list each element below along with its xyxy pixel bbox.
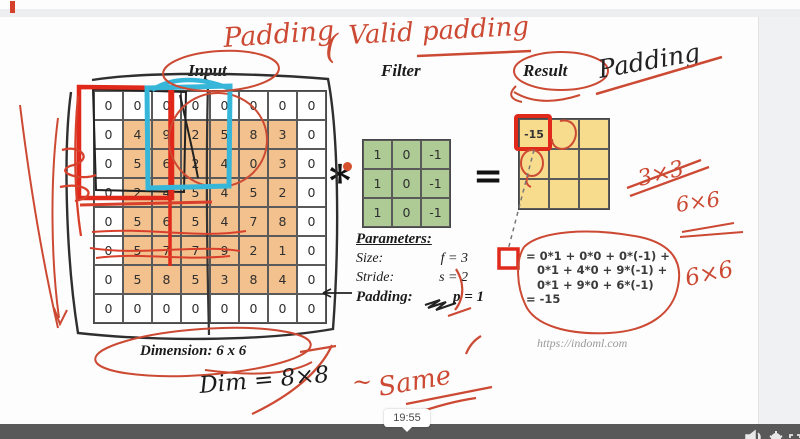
grid-cell: 0 (210, 294, 239, 323)
computation-line: 0*1 + 4*0 + 9*(-1) + (526, 263, 670, 277)
red-underline-padding (417, 51, 531, 56)
cyan-arrow (152, 80, 228, 90)
grid-cell: 0 (181, 294, 210, 323)
grid-cell: 0 (94, 207, 123, 236)
grid-cell: 5 (210, 120, 239, 149)
grid-cell: 0 (94, 178, 123, 207)
grid-cell: 2 (123, 178, 152, 207)
grid-cell: -15 (519, 119, 549, 149)
grid-cell: -1 (421, 140, 450, 169)
grid-cell: 0 (297, 120, 326, 149)
grid-cell: 5 (123, 265, 152, 294)
red-stroke-left-1 (20, 105, 58, 328)
grid-cell (579, 149, 609, 179)
parameters-title: Parameters: (356, 231, 486, 248)
red-cross-3x3 (627, 160, 709, 196)
grid-cell: 0 (297, 207, 326, 236)
grid-cell: 8 (239, 120, 268, 149)
grid-cell: 5 (181, 265, 210, 294)
grid-cell: 0 (94, 149, 123, 178)
red-underline-6x6 (680, 223, 743, 237)
grid-cell: 4 (210, 207, 239, 236)
filter-header: Filter (381, 61, 421, 81)
dimension-label: Dimension: 6 x 6 (140, 343, 246, 360)
grid-cell (519, 149, 549, 179)
grid-cell: 0 (297, 149, 326, 178)
grid-cell: 1 (363, 198, 392, 227)
grid-cell: 0 (297, 178, 326, 207)
handwriting-6x6-first: 6×6 (674, 187, 721, 217)
grid-cell: 4 (268, 265, 297, 294)
grid-cell: 0 (152, 91, 181, 120)
grid-cell: 2 (181, 149, 210, 178)
equals-sign: = (473, 155, 503, 197)
grid-cell: 9 (152, 120, 181, 149)
grid-cell: 1 (363, 169, 392, 198)
red-square-callout (499, 249, 518, 268)
handwriting-padding-black: Padding (595, 38, 702, 85)
grid-cell: 0 (210, 91, 239, 120)
grid-cell (519, 179, 549, 209)
handwriting-same: Same (376, 361, 453, 403)
computation-line: 0*1 + 9*0 + 6*(-1) (526, 278, 670, 292)
grid-cell (549, 149, 579, 179)
red-checkmark (466, 336, 481, 354)
grid-cell: 0 (392, 140, 421, 169)
watermark-url: https://indoml.com (537, 336, 627, 351)
grid-cell: 5 (181, 178, 210, 207)
grid-cell: 0 (297, 265, 326, 294)
padding-label: Padding: (356, 289, 413, 306)
grid-cell: 2 (268, 178, 297, 207)
grid-cell: 0 (152, 294, 181, 323)
computation-line: = 0*1 + 0*0 + 0*(-1) + (526, 249, 670, 263)
input-grid: 0000000004925830056240300245452005654780… (93, 90, 327, 324)
grid-cell: 3 (268, 120, 297, 149)
grid-cell: 8 (152, 265, 181, 294)
grid-cell: 2 (181, 120, 210, 149)
grid-cell (549, 119, 579, 149)
red-dot-marker (343, 162, 352, 171)
parameters-block: Parameters: Size: f = 3 Stride: s = 2 Pa… (356, 231, 486, 306)
grid-cell: 5 (123, 236, 152, 265)
grid-cell: 2 (239, 236, 268, 265)
grid-cell: 6 (152, 207, 181, 236)
handwriting-padding-red: Padding (221, 15, 335, 54)
grid-cell: 4 (123, 120, 152, 149)
padding-row: Padding: p = 1 (356, 289, 484, 306)
grid-cell: -1 (421, 198, 450, 227)
grid-cell: 0 (392, 169, 421, 198)
grid-cell: 4 (210, 149, 239, 178)
computation-result: = -15 (526, 292, 670, 306)
grid-cell: 5 (123, 207, 152, 236)
size-label: Size: (356, 251, 383, 267)
handwriting-valid-padding: Valid padding (348, 12, 530, 51)
grid-cell: 9 (210, 236, 239, 265)
grid-cell: 4 (210, 178, 239, 207)
grid-cell: 0 (297, 236, 326, 265)
grid-cell: 3 (210, 265, 239, 294)
grid-cell: 0 (297, 294, 326, 323)
grid-cell: 0 (392, 198, 421, 227)
grid-cell: 0 (94, 236, 123, 265)
grid-cell: 0 (94, 294, 123, 323)
stride-row: Stride: s = 2 (356, 270, 468, 286)
grid-cell: 1 (268, 236, 297, 265)
grid-cell: 0 (94, 91, 123, 120)
red-underline-dimension (205, 362, 312, 374)
top-divider-band (0, 9, 800, 17)
grid-cell (579, 179, 609, 209)
handwriting-6x6-second: 6×6 (683, 256, 736, 292)
grid-cell: 0 (123, 294, 152, 323)
stride-value: s = 2 (439, 270, 468, 286)
grid-cell: 5 (181, 207, 210, 236)
grid-cell: 0 (94, 265, 123, 294)
red-swirl-result (511, 86, 580, 102)
handwriting-tilde: ~ (352, 368, 372, 396)
grid-cell: 7 (152, 236, 181, 265)
grid-cell: 0 (268, 294, 297, 323)
video-frame: Input Filter Result 00000000049258300562… (0, 0, 800, 439)
red-corner-mark (10, 1, 15, 13)
grid-cell: 0 (123, 91, 152, 120)
result-header: Result (523, 61, 567, 81)
grid-cell: 8 (239, 265, 268, 294)
filter-grid: 10-110-110-1 (362, 139, 451, 228)
handwriting-3x3: 3×3 (635, 156, 686, 191)
grid-cell: 7 (239, 207, 268, 236)
grid-cell: 0 (297, 91, 326, 120)
padding-arrow (323, 289, 352, 297)
size-value: f = 3 (441, 251, 468, 267)
red-scribble-left (60, 96, 96, 236)
grid-cell: 0 (239, 149, 268, 178)
grid-cell: 8 (268, 207, 297, 236)
grid-cell: 6 (152, 149, 181, 178)
grid-cell: 4 (152, 178, 181, 207)
grid-cell: 7 (181, 236, 210, 265)
size-row: Size: f = 3 (356, 251, 468, 267)
computation-block: = 0*1 + 0*0 + 0*(-1) + 0*1 + 4*0 + 9*(-1… (526, 249, 670, 307)
grid-cell: 5 (123, 149, 152, 178)
grid-cell: -1 (421, 169, 450, 198)
grid-cell: 0 (181, 91, 210, 120)
grid-cell: 0 (239, 294, 268, 323)
padding-value: p = 1 (453, 289, 484, 306)
red-arrow-left-2 (52, 118, 67, 324)
grid-cell (549, 179, 579, 209)
seek-time-tooltip: 19:55 (384, 409, 430, 427)
grid-cell: 1 (363, 140, 392, 169)
grid-cell: 0 (94, 120, 123, 149)
right-letterbox (758, 17, 800, 425)
handwriting-dim-8x8: Dim = 8×8 (197, 362, 330, 399)
grid-cell (579, 119, 609, 149)
red-stroke-8x8 (252, 345, 336, 414)
result-grid: -15 (518, 118, 610, 210)
stride-label: Stride: (356, 270, 394, 286)
grid-cell: 0 (239, 91, 268, 120)
handwriting-brace: ( (325, 27, 339, 67)
grid-cell: 5 (239, 178, 268, 207)
grid-cell: 0 (268, 91, 297, 120)
grid-cell: 3 (268, 149, 297, 178)
input-header: Input (188, 61, 227, 81)
red-strike-padding (596, 57, 722, 94)
